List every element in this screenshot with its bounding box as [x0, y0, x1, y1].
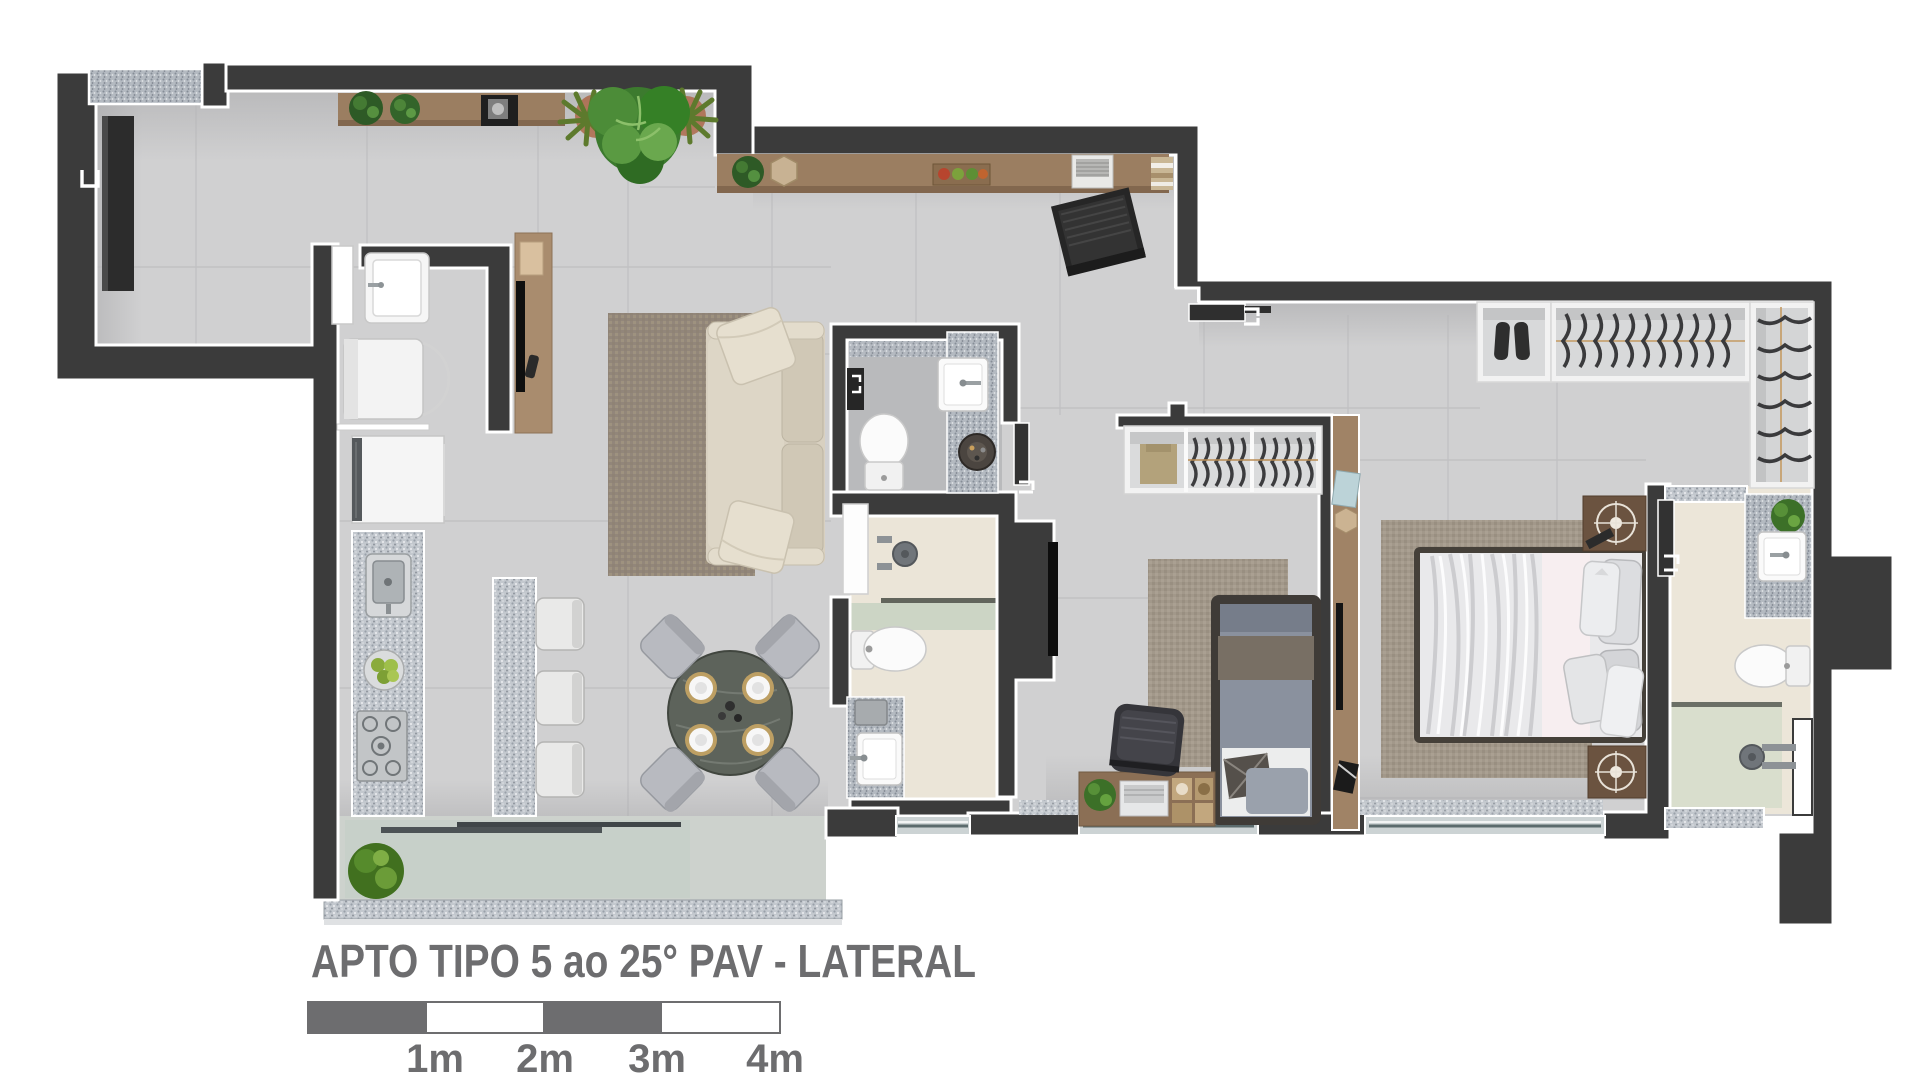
- svg-text:4m: 4m: [746, 1037, 804, 1080]
- svg-text:3m: 3m: [628, 1037, 686, 1080]
- svg-text:2m: 2m: [516, 1037, 574, 1080]
- svg-text:APTO TIPO 5 ao 25° PAV - LATER: APTO TIPO 5 ao 25° PAV - LATERAL: [311, 935, 976, 987]
- svg-text:1m: 1m: [406, 1037, 464, 1080]
